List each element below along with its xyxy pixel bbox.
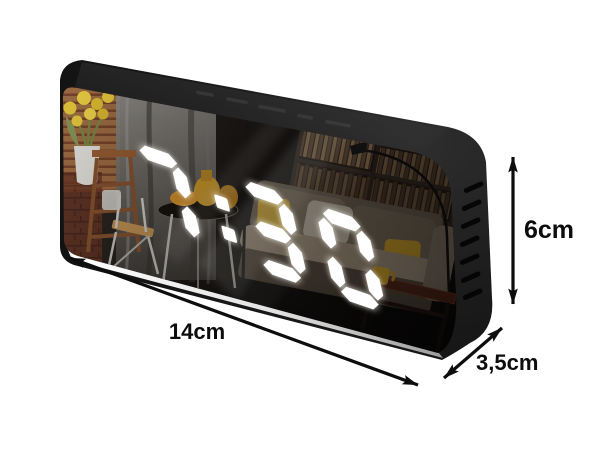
height-label: 6cm [524,216,574,244]
depth-label: 3,5cm [476,350,538,375]
product-photo-canvas: 14cm 6cm 3,5cm [0,0,600,450]
height-dimension: 6cm [513,157,574,304]
width-label: 14cm [169,319,225,344]
product-photo: 14cm 6cm 3,5cm [0,0,600,450]
alarm-clock [55,60,492,365]
